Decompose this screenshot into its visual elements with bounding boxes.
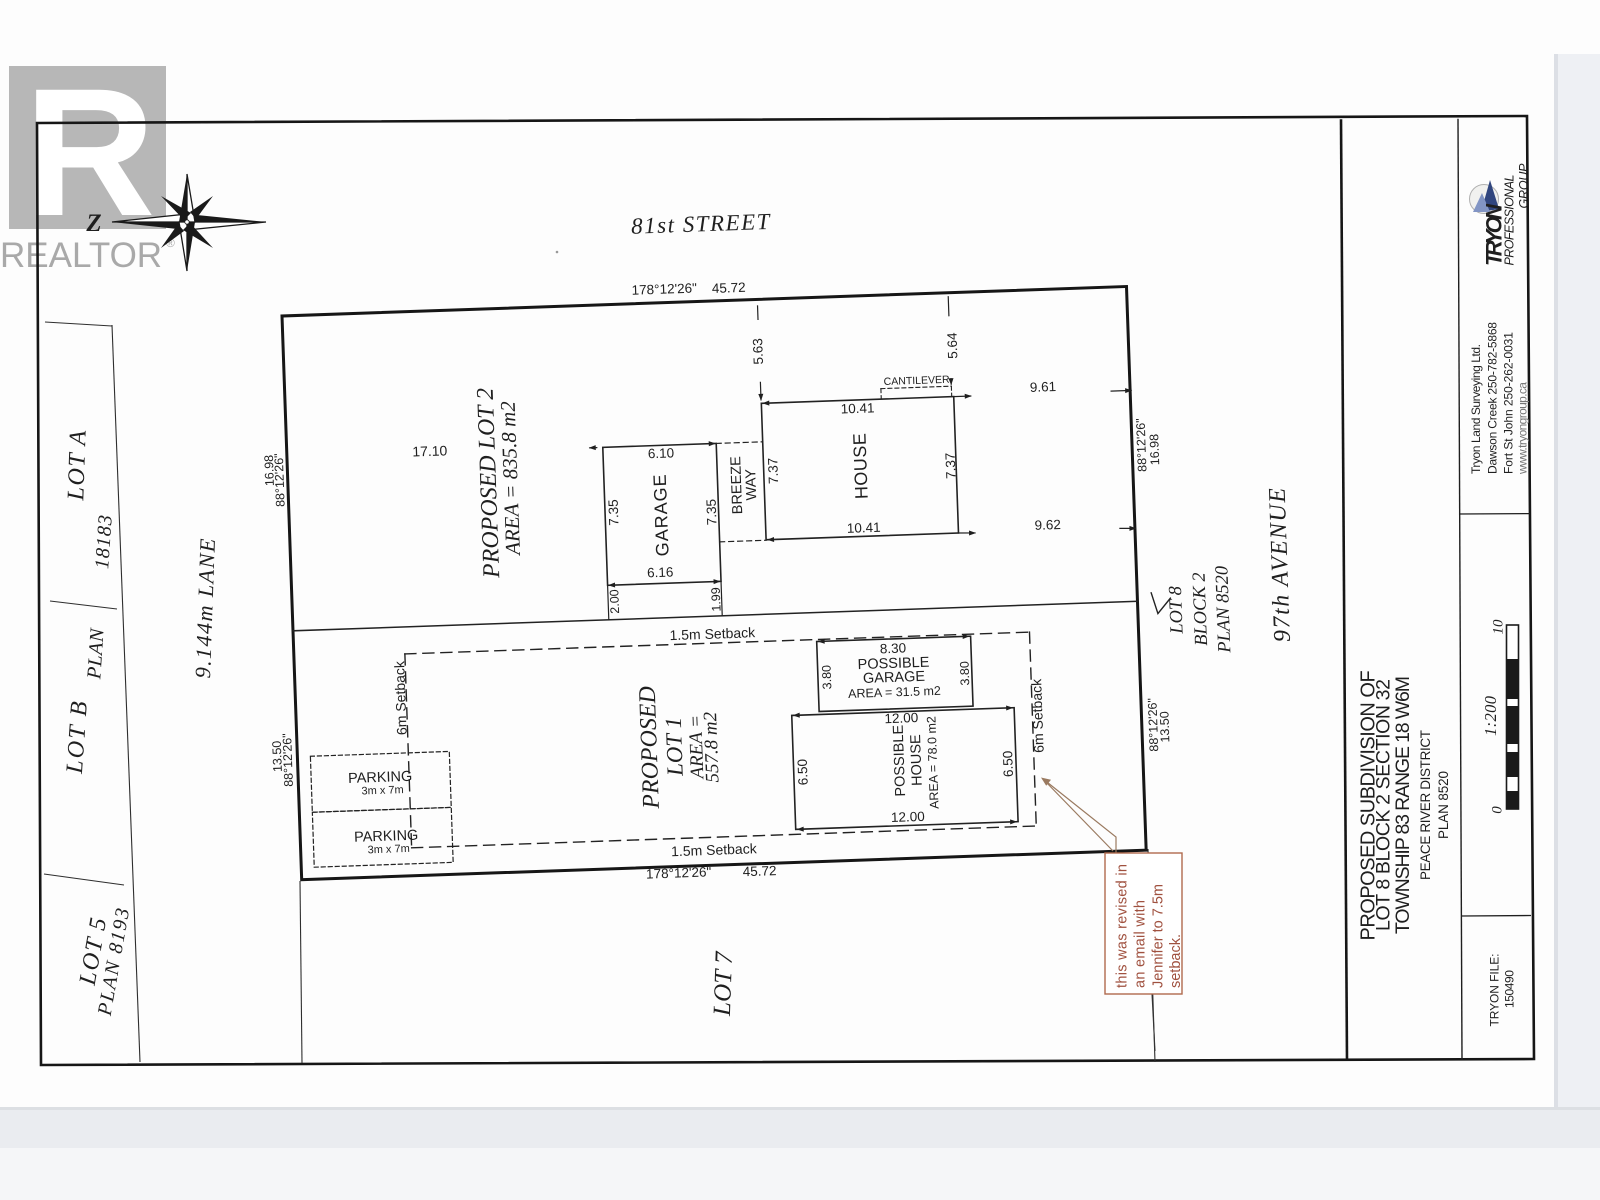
svg-text:Z: Z [85, 210, 101, 237]
svg-text:PEACE RIVER DISTRICT: PEACE RIVER DISTRICT [1418, 730, 1433, 880]
svg-text:0: 0 [1490, 806, 1506, 814]
svg-text:www.tryongroup.ca: www.tryongroup.ca [1516, 382, 1530, 475]
svg-text:3.80: 3.80 [820, 665, 835, 690]
svg-text:2.00: 2.00 [607, 589, 622, 614]
svg-text:6.50: 6.50 [1000, 751, 1016, 778]
svg-text:178°12'26": 178°12'26" [646, 864, 712, 881]
svg-text:LOT A: LOT A [63, 429, 92, 502]
svg-text:13.50: 13.50 [1157, 711, 1172, 743]
svg-text:HOUSE: HOUSE [849, 432, 871, 499]
svg-text:178°12'26": 178°12'26" [631, 280, 697, 297]
svg-text:6m Setback: 6m Setback [1028, 678, 1047, 753]
svg-text:BLOCK 2: BLOCK 2 [1190, 572, 1213, 646]
svg-text:81st STREET: 81st STREET [631, 209, 772, 239]
svg-text:1:200: 1:200 [1481, 695, 1500, 736]
svg-text:WAY: WAY [743, 468, 760, 500]
svg-text:88°12'26": 88°12'26" [272, 453, 288, 507]
svg-text:setback.: setback. [1168, 934, 1184, 988]
svg-text:1.5m Setback: 1.5m Setback [669, 624, 756, 643]
svg-text:HOUSE: HOUSE [908, 734, 926, 786]
svg-text:10.41: 10.41 [840, 400, 874, 416]
svg-text:PLAN 8520: PLAN 8520 [1436, 771, 1451, 839]
svg-text:REALTOR: REALTOR [0, 236, 162, 275]
svg-text:Jennifer to 7.5m: Jennifer to 7.5m [1151, 884, 1167, 988]
svg-text:TRYON FILE:: TRYON FILE: [1488, 954, 1502, 1027]
svg-text:9.144m LANE: 9.144m LANE [190, 537, 220, 679]
svg-text:97th AVENUE: 97th AVENUE [1265, 486, 1296, 642]
svg-text:5.63: 5.63 [750, 338, 766, 365]
svg-text:this was revised in: this was revised in [1115, 864, 1131, 988]
svg-text:CANTILEVER: CANTILEVER [883, 374, 950, 388]
svg-text:PROPOSED: PROPOSED [635, 686, 665, 810]
svg-text:45.72: 45.72 [712, 280, 746, 296]
svg-text:an email with: an email with [1133, 900, 1149, 988]
svg-text:Dawson Creek 250-782-5868: Dawson Creek 250-782-5868 [1486, 322, 1500, 474]
svg-text:PLAN: PLAN [83, 626, 109, 680]
svg-text:TOWNSHIP 83 RANGE 18 W6M: TOWNSHIP 83 RANGE 18 W6M [1392, 676, 1414, 934]
svg-text:3m x 7m: 3m x 7m [367, 843, 410, 856]
svg-text:12.00: 12.00 [884, 710, 918, 726]
svg-text:88°12'26": 88°12'26" [280, 733, 296, 787]
svg-text:PLAN 8520: PLAN 8520 [1212, 565, 1235, 654]
svg-text:LOT 8: LOT 8 [1166, 585, 1188, 635]
svg-text:1.5m Setback: 1.5m Setback [671, 840, 758, 859]
svg-text:16.98: 16.98 [1147, 434, 1162, 466]
svg-text:Tryon Land Surveying Ltd.: Tryon Land Surveying Ltd. [1469, 344, 1483, 474]
svg-text:LOT B: LOT B [62, 699, 93, 776]
svg-text:6.50: 6.50 [795, 759, 811, 786]
svg-text:45.72: 45.72 [743, 863, 777, 879]
svg-text:9.61: 9.61 [1030, 379, 1057, 395]
svg-text:18183: 18183 [91, 513, 117, 569]
svg-text:LOT 1: LOT 1 [661, 717, 688, 778]
svg-text:10.41: 10.41 [847, 520, 881, 536]
svg-text:7.37: 7.37 [943, 452, 959, 479]
svg-text:6m Setback: 6m Setback [391, 660, 410, 735]
svg-text:LOT 7: LOT 7 [709, 950, 738, 1018]
svg-text:Fort St John 250-262-0031: Fort St John 250-262-0031 [1502, 332, 1516, 474]
svg-text:GARAGE: GARAGE [650, 473, 673, 557]
svg-text:557.8 m2: 557.8 m2 [700, 711, 723, 783]
svg-text:1.99: 1.99 [709, 587, 724, 612]
svg-text:3.80: 3.80 [957, 661, 972, 686]
svg-text:9.62: 9.62 [1034, 517, 1061, 533]
svg-text:7.35: 7.35 [606, 499, 622, 526]
svg-text:12.00: 12.00 [891, 809, 925, 825]
svg-text:6.16: 6.16 [647, 565, 674, 581]
svg-text:8.30: 8.30 [880, 640, 907, 656]
svg-text:GROUP: GROUP [1517, 163, 1531, 209]
svg-text:PROFESSIONAL: PROFESSIONAL [1503, 174, 1517, 265]
svg-text:5.64: 5.64 [944, 332, 960, 359]
svg-text:7.37: 7.37 [765, 458, 781, 485]
svg-text:6.10: 6.10 [648, 445, 675, 461]
svg-text:17.10: 17.10 [412, 442, 448, 459]
svg-text:7.35: 7.35 [704, 499, 720, 526]
svg-text:10: 10 [1491, 619, 1507, 635]
svg-text:POSSIBLE: POSSIBLE [891, 724, 910, 797]
svg-text:3m x 7m: 3m x 7m [361, 784, 404, 797]
svg-text:150490: 150490 [1503, 970, 1517, 1008]
